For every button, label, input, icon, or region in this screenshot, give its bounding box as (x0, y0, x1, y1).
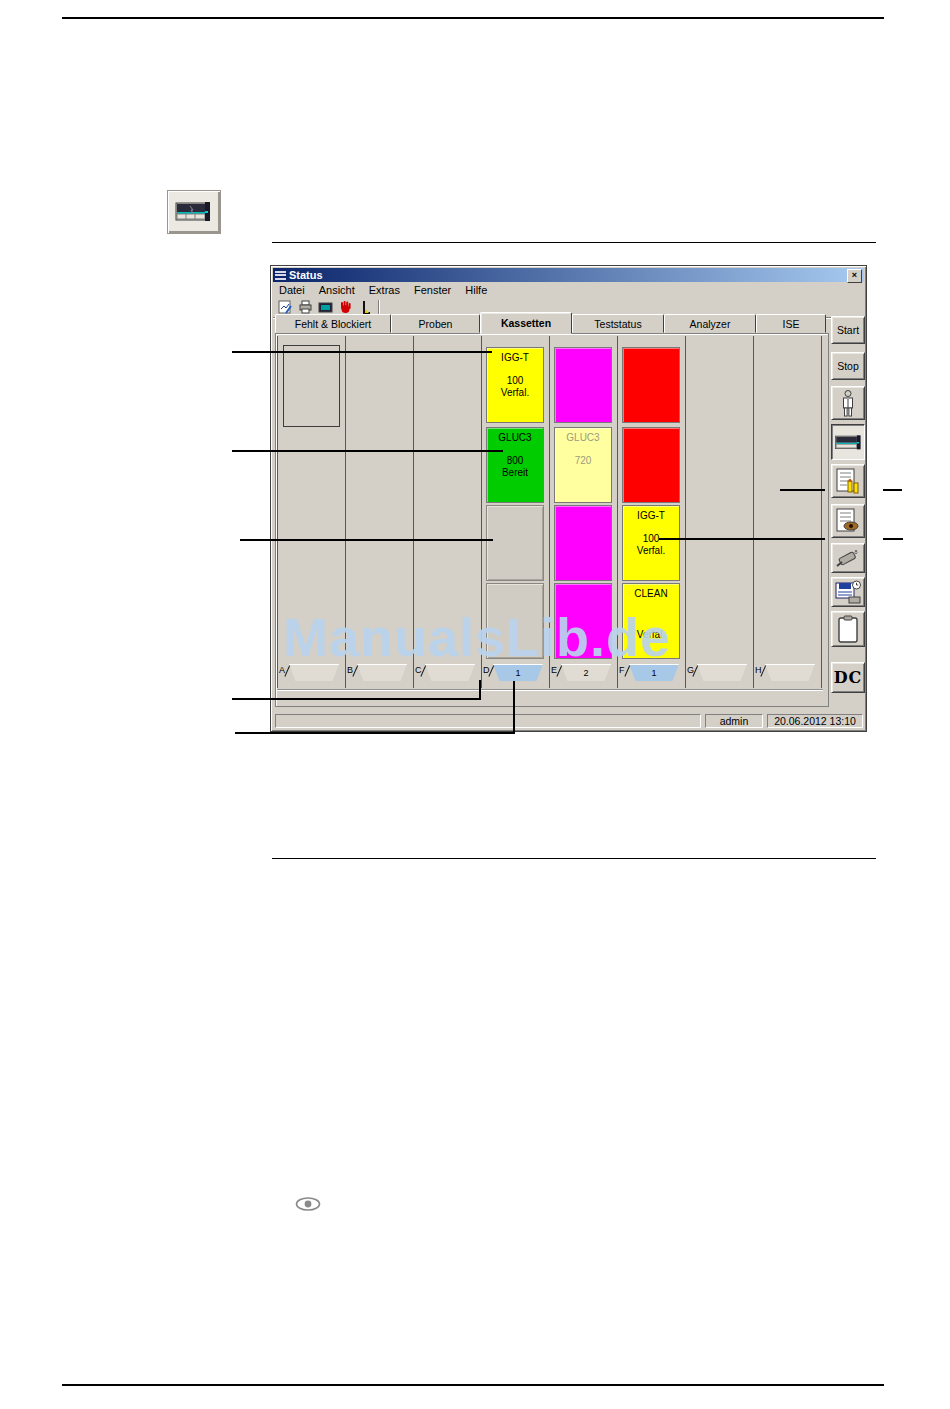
review-icon (835, 508, 861, 534)
save-button[interactable] (831, 577, 865, 607)
section-rule-bottom (272, 858, 876, 859)
cassette-count: 100 (487, 375, 543, 386)
tab-proben[interactable]: Proben (391, 314, 480, 333)
tab-teststatus[interactable]: Teststatus (572, 314, 664, 333)
callout-line-cassette-yellow (232, 351, 492, 353)
cassette-slot-e1[interactable] (554, 347, 612, 423)
tab-kassetten[interactable]: Kassetten (480, 312, 572, 334)
menubar: Datei Ansicht Extras Fenster Hilfe (273, 283, 864, 297)
cassette-name: IGG-T (623, 510, 679, 521)
lane-G: G (686, 336, 754, 688)
tab-label: Teststatus (594, 318, 641, 330)
drawer-tab-g[interactable] (697, 664, 747, 681)
eye-icon (294, 1195, 322, 1217)
start-label: Start (837, 324, 859, 336)
operator-button[interactable] (831, 386, 865, 420)
cassette-name: CLEAN (623, 588, 679, 599)
cassette-slot-d3-empty[interactable] (486, 505, 544, 581)
statusbar-user: admin (705, 714, 763, 728)
printer-icon[interactable] (296, 299, 314, 316)
chart-edit-icon[interactable] (276, 299, 294, 316)
titlebar[interactable]: Status × (273, 268, 864, 282)
cassette-name: GLUC3 (555, 432, 611, 443)
cassette-slot-e3[interactable] (554, 505, 612, 581)
cassette-count: 800 (487, 455, 543, 466)
tab-label: Proben (419, 318, 453, 330)
menu-ansicht[interactable]: Ansicht (313, 284, 361, 296)
section-rule-top (272, 242, 876, 243)
tab-label: ISE (783, 318, 800, 330)
callout-line-empty-lane-right (883, 489, 902, 491)
dc-button[interactable]: DC (831, 662, 865, 693)
menu-extras[interactable]: Extras (363, 284, 406, 296)
save-icon (835, 580, 862, 605)
stop-hand-icon[interactable] (336, 299, 354, 316)
worklist-icon (835, 468, 861, 495)
statusbar: admin 20.06.2012 13:10 (273, 713, 864, 729)
monitor-icon[interactable] (316, 299, 334, 316)
callout-line-cassette-green (232, 450, 503, 452)
tab-label: Kassetten (501, 317, 551, 329)
cassette-button-icon (167, 190, 221, 234)
cassette-status: Verfal. (623, 545, 679, 556)
start-button[interactable]: Start (831, 316, 865, 344)
callout-line-f-cassette-left (659, 538, 825, 540)
tab-label: Analyzer (690, 318, 731, 330)
stop-button[interactable]: Stop (831, 352, 865, 380)
callout-line-empty-slot (240, 539, 493, 541)
cassette-slot-d1[interactable]: IGG-T 100 Verfal. (486, 347, 544, 423)
tab-ise[interactable]: ISE (756, 314, 826, 333)
cassette-slot-f2[interactable] (622, 427, 680, 503)
callout-line-empty-lane-left (780, 489, 825, 491)
operator-icon (840, 390, 856, 417)
drawer-tab-h[interactable] (765, 664, 815, 681)
callout-line-drawer-tab-vertical (513, 681, 515, 734)
statusbar-datetime: 20.06.2012 13:10 (767, 714, 863, 728)
cassette-slot-f1[interactable] (622, 347, 680, 423)
cassette-name: IGG-T (487, 352, 543, 363)
cassette-status: Bereit (487, 467, 543, 478)
dc-label: DC (834, 668, 863, 687)
stop-label: Stop (837, 360, 859, 372)
callout-line-drawer-tab (235, 732, 515, 734)
tab-analyzer[interactable]: Analyzer (664, 314, 756, 333)
menu-fenster[interactable]: Fenster (408, 284, 457, 296)
menu-hilfe[interactable]: Hilfe (459, 284, 493, 296)
pipette-button[interactable] (831, 543, 865, 573)
cassette-icon (174, 200, 214, 224)
page-bottom-rule (62, 1384, 884, 1386)
callout-line-lane-letter-vertical (479, 680, 481, 700)
drawer-tab-label: 2 (583, 668, 588, 678)
cassette-view-button[interactable] (831, 424, 865, 460)
drawer-tab-label: 1 (515, 668, 520, 678)
cassette-name: GLUC3 (487, 432, 543, 443)
cassette-slot-e2[interactable]: GLUC3 720 (554, 427, 612, 503)
cassette-status: Verfal. (487, 387, 543, 398)
measure-icon[interactable] (356, 299, 374, 316)
tab-fehlt-blockiert[interactable]: Fehlt & Blockiert (275, 314, 391, 333)
clipboard-icon (837, 615, 859, 644)
worklist-button[interactable] (831, 464, 865, 498)
window-title: Status (289, 269, 323, 281)
empty-slot-outline (283, 345, 340, 427)
cassette-count: 720 (555, 455, 611, 466)
review-button[interactable] (831, 504, 865, 538)
drawer-tab-label: 1 (651, 668, 656, 678)
clipboard-button[interactable] (831, 611, 865, 647)
cassette-icon (834, 433, 862, 451)
menu-datei[interactable]: Datei (273, 284, 311, 296)
lane-H: H (754, 336, 822, 688)
cassette-slot-f3[interactable]: IGG-T 100 Verfal. (622, 505, 680, 581)
manual-page: Status × Datei Ansicht Extras Fenster Hi… (0, 0, 950, 1409)
toolbar-separator (378, 300, 380, 315)
close-icon[interactable]: × (847, 269, 862, 283)
watermark: ManualsLib.de (283, 606, 671, 668)
callout-line-lane-letter (232, 698, 481, 700)
panel-bottom-groove (277, 689, 823, 690)
callout-line-f-cassette-right (883, 538, 903, 540)
statusbar-message (275, 714, 701, 728)
tab-label: Fehlt & Blockiert (295, 318, 371, 330)
window-menu-icon[interactable] (275, 271, 286, 280)
page-top-rule (62, 17, 884, 19)
cassette-slot-d2[interactable]: GLUC3 800 Bereit (486, 427, 544, 503)
pipette-icon (835, 546, 861, 570)
